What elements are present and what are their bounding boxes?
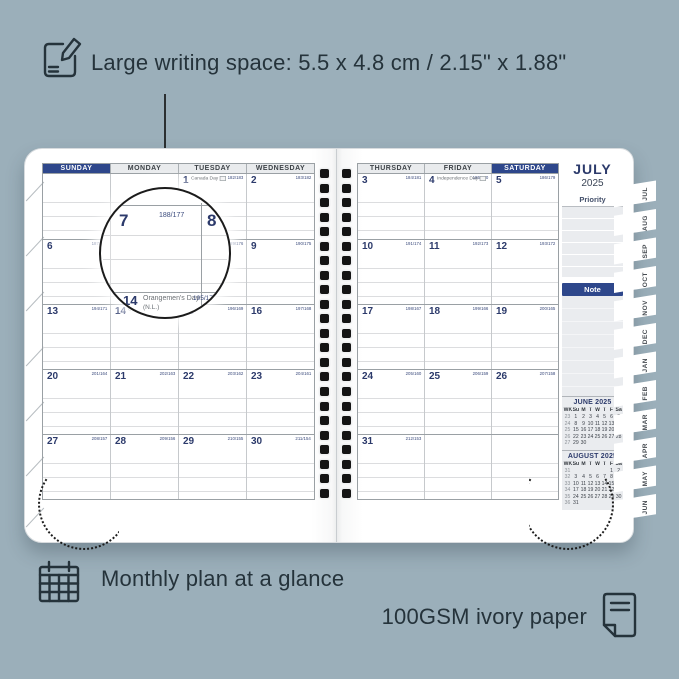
day-counter: 193/172 [539, 242, 555, 246]
binding-hole [320, 227, 329, 236]
mini-col-header: T [601, 408, 607, 414]
date-number: 5 [496, 176, 502, 186]
writing-lines [43, 268, 110, 304]
paper-sheet-icon [595, 590, 641, 642]
mini-day: 9 [580, 421, 586, 427]
week-row: 191/17410192/17311193/17212 [358, 239, 558, 304]
mini-col-header: W [594, 408, 600, 414]
binding-hole [342, 372, 351, 381]
mini-day [601, 468, 607, 474]
day-cell-2: 183/1822 [247, 174, 314, 239]
mini-day: 25 [564, 427, 572, 433]
mini-day: 5 [601, 414, 607, 420]
mini-col-header: M [580, 461, 586, 467]
sidebar-month: JULY [562, 161, 623, 177]
mini-day [601, 440, 607, 446]
day-cell-4: 185/1804Independence Day [425, 174, 492, 239]
day-counter: 204/161 [295, 372, 311, 376]
binding-hole [342, 271, 351, 280]
date-number: 1 [183, 176, 189, 186]
mini-day: 23 [564, 414, 572, 420]
date-number: 19 [496, 307, 507, 317]
mini-col-header: T [587, 408, 593, 414]
date-number: 24 [362, 372, 373, 382]
month-tabs: JULAUGSEPOCTNOVDECJANFEBMARAPRMAYJUN [614, 180, 656, 522]
writing-lines [43, 398, 110, 434]
day-counter: 183/182 [295, 176, 311, 180]
binding-hole [342, 402, 351, 411]
day-counter: 200/165 [539, 307, 555, 311]
day-cell-28: 209/15628 [111, 435, 179, 499]
mini-day: 24 [587, 434, 593, 440]
binding-hole [320, 169, 329, 178]
binding-hole [320, 271, 329, 280]
magnified-writing-line [103, 259, 227, 260]
calendar-weeks: 184/1813185/1804Independence Day186/1795… [357, 174, 559, 500]
week-row: 198/16717199/16618200/16519 [358, 304, 558, 369]
tab-feb: FEB [614, 380, 656, 408]
date-number: 4 [429, 176, 435, 186]
mini-day: 23 [580, 434, 586, 440]
magnified-writing-line [103, 235, 227, 236]
binding-hole [320, 256, 329, 265]
day-header-saturday: SATURDAY [492, 164, 558, 173]
binding-hole [342, 460, 351, 469]
mini-col-header: WK [564, 461, 572, 467]
writing-lines [358, 463, 424, 499]
writing-lines [247, 333, 314, 369]
day-cell-13: 194/17113 [43, 305, 111, 369]
day-counter: 199/166 [472, 307, 488, 311]
mini-day: 1 [573, 414, 580, 420]
mini-day: 15 [573, 427, 580, 433]
page-gutter [311, 149, 363, 542]
mini-day: 11 [594, 421, 600, 427]
binding-hole [320, 184, 329, 193]
day-cell-29: 210/15529 [179, 435, 247, 499]
day-cell-15: 196/16915 [179, 305, 247, 369]
weekday-header-row: THURSDAYFRIDAYSATURDAY [357, 163, 559, 174]
magnifier-circle: 7 188/177 8 14 Orangemen's Day (N.L.) 19… [99, 187, 231, 319]
binding-hole [320, 314, 329, 323]
mini-day: 25 [594, 434, 600, 440]
mini-day: 30 [580, 440, 586, 446]
mini-col-header: T [587, 461, 593, 467]
date-number: 12 [496, 242, 507, 252]
binding-hole [320, 242, 329, 251]
date-number: 20 [47, 372, 58, 382]
day-cell-12: 193/17212 [492, 240, 558, 304]
day-cell-20: 201/16420 [43, 370, 111, 434]
binding-hole [320, 343, 329, 352]
binding-hole [320, 431, 329, 440]
date-number: 17 [362, 307, 373, 317]
magnified-row-border [103, 292, 227, 293]
mini-col-header: Su [573, 461, 580, 467]
binding-hole [320, 387, 329, 396]
page-gutter-line [336, 149, 337, 542]
magnified-holiday-label: Orangemen's Day [143, 295, 199, 302]
mini-col-header: M [580, 408, 586, 414]
writing-lines [425, 202, 491, 239]
binding-hole [342, 314, 351, 323]
paper-annotation: 100GSM ivory paper [382, 604, 587, 630]
day-counter: 203/162 [227, 372, 243, 376]
day-cell-30: 211/15430 [247, 435, 314, 499]
date-number: 16 [251, 307, 262, 317]
date-number: 9 [251, 242, 257, 252]
binding-hole [320, 416, 329, 425]
day-counter: 207/158 [539, 372, 555, 376]
week-row: 205/16024206/15925207/15826 [358, 369, 558, 434]
date-number: 30 [251, 437, 262, 447]
day-counter: 198/167 [405, 307, 421, 311]
binding-hole [342, 358, 351, 367]
day-counter: 192/173 [472, 242, 488, 246]
day-counter: 190/175 [295, 242, 311, 246]
writing-lines [179, 398, 246, 434]
day-counter: 208/157 [91, 437, 107, 441]
mini-col-header: W [594, 461, 600, 467]
day-cell-31: 212/15331 [358, 435, 425, 499]
day-header-thursday: THURSDAY [358, 164, 425, 173]
day-header-sunday: SUNDAY [43, 164, 111, 173]
binding-hole [320, 198, 329, 207]
mini-day: 18 [594, 427, 600, 433]
day-counter: 210/155 [227, 437, 243, 441]
mini-day: 26 [601, 434, 607, 440]
day-cell-25: 206/15925 [425, 370, 492, 434]
day-counter: 201/164 [91, 372, 107, 376]
binding-hole [320, 402, 329, 411]
day-counter: 196/169 [227, 307, 243, 311]
day-cell-23: 204/16123 [247, 370, 314, 434]
binding-hole [342, 445, 351, 454]
monthly-plan-annotation: Monthly plan at a glance [101, 566, 344, 592]
day-counter: 211/154 [296, 437, 311, 441]
magnified-writing-line [103, 283, 227, 284]
mini-day [573, 468, 580, 474]
date-number: 11 [429, 242, 440, 252]
date-number: 22 [183, 372, 194, 382]
day-cell-17: 198/16717 [358, 305, 425, 369]
day-header-friday: FRIDAY [425, 164, 492, 173]
date-number: 6 [47, 242, 53, 252]
mini-day: 4 [594, 414, 600, 420]
writing-lines [247, 398, 314, 434]
mini-day: 17 [587, 427, 593, 433]
day-cell-empty [425, 435, 492, 499]
day-counter: 184/181 [405, 176, 421, 180]
writing-lines [43, 333, 110, 369]
tab-sep: SEP [614, 237, 656, 265]
day-cell-9: 190/1759 [247, 240, 314, 304]
day-counter: 186/179 [539, 176, 555, 180]
magnified-day-counter: 188/177 [159, 212, 184, 219]
binding-hole [342, 300, 351, 309]
writing-lines [425, 398, 491, 434]
writing-space-annotation: Large writing space: 5.5 x 4.8 cm / 2.15… [91, 50, 566, 76]
day-cell-19: 200/16519 [492, 305, 558, 369]
binding-hole [320, 474, 329, 483]
week-row: 212/15331 [358, 434, 558, 499]
holiday-label: Canada Day [191, 176, 226, 182]
flag-icon [219, 176, 225, 181]
date-number: 28 [115, 437, 126, 447]
writing-lines [358, 202, 424, 239]
writing-lines [111, 398, 178, 434]
binding-hole [320, 445, 329, 454]
binding-hole [342, 227, 351, 236]
binding-hole [320, 213, 329, 222]
day-cell-24: 205/16024 [358, 370, 425, 434]
day-header-tuesday: TUESDAY [179, 164, 247, 173]
day-cell-18: 199/16618 [425, 305, 492, 369]
date-number: 13 [47, 307, 58, 317]
tab-dec: DEC [614, 323, 656, 351]
mini-day: 19 [601, 427, 607, 433]
writing-lines [425, 333, 491, 369]
tab-jul: JUL [614, 180, 656, 208]
writing-lines [492, 268, 558, 304]
tab-nov: NOV [614, 294, 656, 322]
binding-hole [320, 285, 329, 294]
date-number: 29 [183, 437, 194, 447]
writing-lines [425, 268, 491, 304]
binding-hole [320, 372, 329, 381]
mini-day [587, 468, 593, 474]
writing-lines [492, 333, 558, 369]
writing-lines [111, 463, 178, 499]
writing-lines [358, 333, 424, 369]
magnified-row-border [103, 205, 227, 206]
date-number: 27 [47, 437, 58, 447]
date-number: 26 [496, 372, 507, 382]
calendar-grid-icon [36, 558, 82, 606]
mini-day: 12 [601, 421, 607, 427]
date-number: 14 [115, 307, 126, 317]
flag-icon [479, 176, 485, 181]
day-header-monday: MONDAY [111, 164, 179, 173]
writing-lines [358, 398, 424, 434]
tab-aug: AUG [614, 209, 656, 237]
mini-day: 29 [573, 440, 580, 446]
binding-hole [342, 387, 351, 396]
binding-holes-right [342, 169, 351, 498]
mini-col-header: Su [573, 408, 580, 414]
mini-day [594, 468, 600, 474]
mini-day: 3 [587, 414, 593, 420]
binding-holes-left [320, 169, 329, 498]
tab-jan: JAN [614, 351, 656, 379]
magnified-holiday-note: (N.L.) [143, 304, 159, 311]
binding-hole [320, 300, 329, 309]
mini-day: 22 [573, 434, 580, 440]
binding-hole [320, 460, 329, 469]
binding-hole [342, 184, 351, 193]
day-counter: 206/159 [472, 372, 488, 376]
writing-lines [179, 463, 246, 499]
day-counter: 197/168 [295, 307, 311, 311]
day-cell-26: 207/15826 [492, 370, 558, 434]
tab-apr: APR [614, 437, 656, 465]
writing-lines [425, 463, 491, 499]
day-cell-10: 191/17410 [358, 240, 425, 304]
week-row: 201/16420202/16321203/16222204/16123 [43, 369, 314, 434]
mini-day: 16 [580, 427, 586, 433]
writing-lines [43, 202, 110, 239]
date-number: 21 [115, 372, 126, 382]
date-number: 3 [362, 176, 368, 186]
tab-mar: MAR [614, 408, 656, 436]
binding-hole [342, 242, 351, 251]
mini-day: 24 [564, 421, 572, 427]
day-counter: 194/171 [91, 307, 107, 311]
corner-stitch-arc-left [24, 478, 119, 558]
magnified-adjacent-date: 8 [207, 211, 216, 231]
date-number: 23 [251, 372, 262, 382]
binding-hole [320, 358, 329, 367]
day-cell-16: 197/16816 [247, 305, 314, 369]
mini-day: 26 [564, 434, 572, 440]
binding-hole [342, 213, 351, 222]
mini-day: 2 [580, 414, 586, 420]
holiday-label: Independence Day [437, 176, 486, 182]
mini-day: 10 [587, 421, 593, 427]
magnified-day-counter: 195/170 [193, 295, 217, 302]
day-counter: 209/156 [159, 437, 175, 441]
day-cell-21: 202/16321 [111, 370, 179, 434]
writing-lines [179, 333, 246, 369]
day-counter: 205/160 [405, 372, 421, 376]
day-counter: 191/174 [405, 242, 421, 246]
mini-day: 31 [564, 468, 572, 474]
calendar-grid-right-page: THURSDAYFRIDAYSATURDAY 184/1813185/1804I… [357, 163, 559, 500]
weekday-header-row: SUNDAYMONDAYTUESDAYWEDNESDAY [42, 163, 315, 174]
mini-day [594, 440, 600, 446]
day-counter: 202/163 [159, 372, 175, 376]
binding-hole [320, 489, 329, 498]
binding-hole [342, 474, 351, 483]
binding-hole [320, 329, 329, 338]
date-number: 10 [362, 242, 373, 252]
mini-day [587, 440, 593, 446]
mini-day [580, 468, 586, 474]
date-number: 2 [251, 176, 257, 186]
mini-day: 27 [564, 440, 572, 446]
day-header-wednesday: WEDNESDAY [247, 164, 314, 173]
magnified-date-14: 14 [123, 293, 137, 308]
mini-col-header: T [601, 461, 607, 467]
corner-stitch-arc-right [529, 478, 629, 558]
binding-hole [342, 343, 351, 352]
writing-lines [247, 463, 314, 499]
binding-hole [342, 285, 351, 294]
binding-hole [342, 256, 351, 265]
binding-hole [342, 416, 351, 425]
day-cell-22: 203/16222 [179, 370, 247, 434]
writing-lines [492, 202, 558, 239]
binding-hole [342, 169, 351, 178]
magnified-date-number: 7 [119, 211, 128, 231]
magnified-column-border [110, 205, 111, 293]
writing-lines [247, 202, 314, 239]
tab-oct: OCT [614, 266, 656, 294]
mini-col-header: WK [564, 408, 572, 414]
week-row: 184/1813185/1804Independence Day186/1795 [358, 174, 558, 239]
writing-lines [247, 268, 314, 304]
date-number: 31 [362, 437, 373, 447]
writing-lines [492, 398, 558, 434]
binding-hole [342, 431, 351, 440]
day-counter: 212/153 [405, 437, 421, 441]
writing-lines [358, 268, 424, 304]
day-cell-3: 184/1813 [358, 174, 425, 239]
pencil-note-icon [36, 34, 84, 82]
date-number: 18 [429, 307, 440, 317]
binding-hole [342, 198, 351, 207]
writing-lines [111, 333, 178, 369]
day-cell-5: 186/1795 [492, 174, 558, 239]
mini-day: 8 [573, 421, 580, 427]
day-cell-11: 192/17311 [425, 240, 492, 304]
binding-hole [342, 489, 351, 498]
binding-hole [342, 329, 351, 338]
day-cell-empty [43, 174, 111, 239]
date-number: 25 [429, 372, 440, 382]
